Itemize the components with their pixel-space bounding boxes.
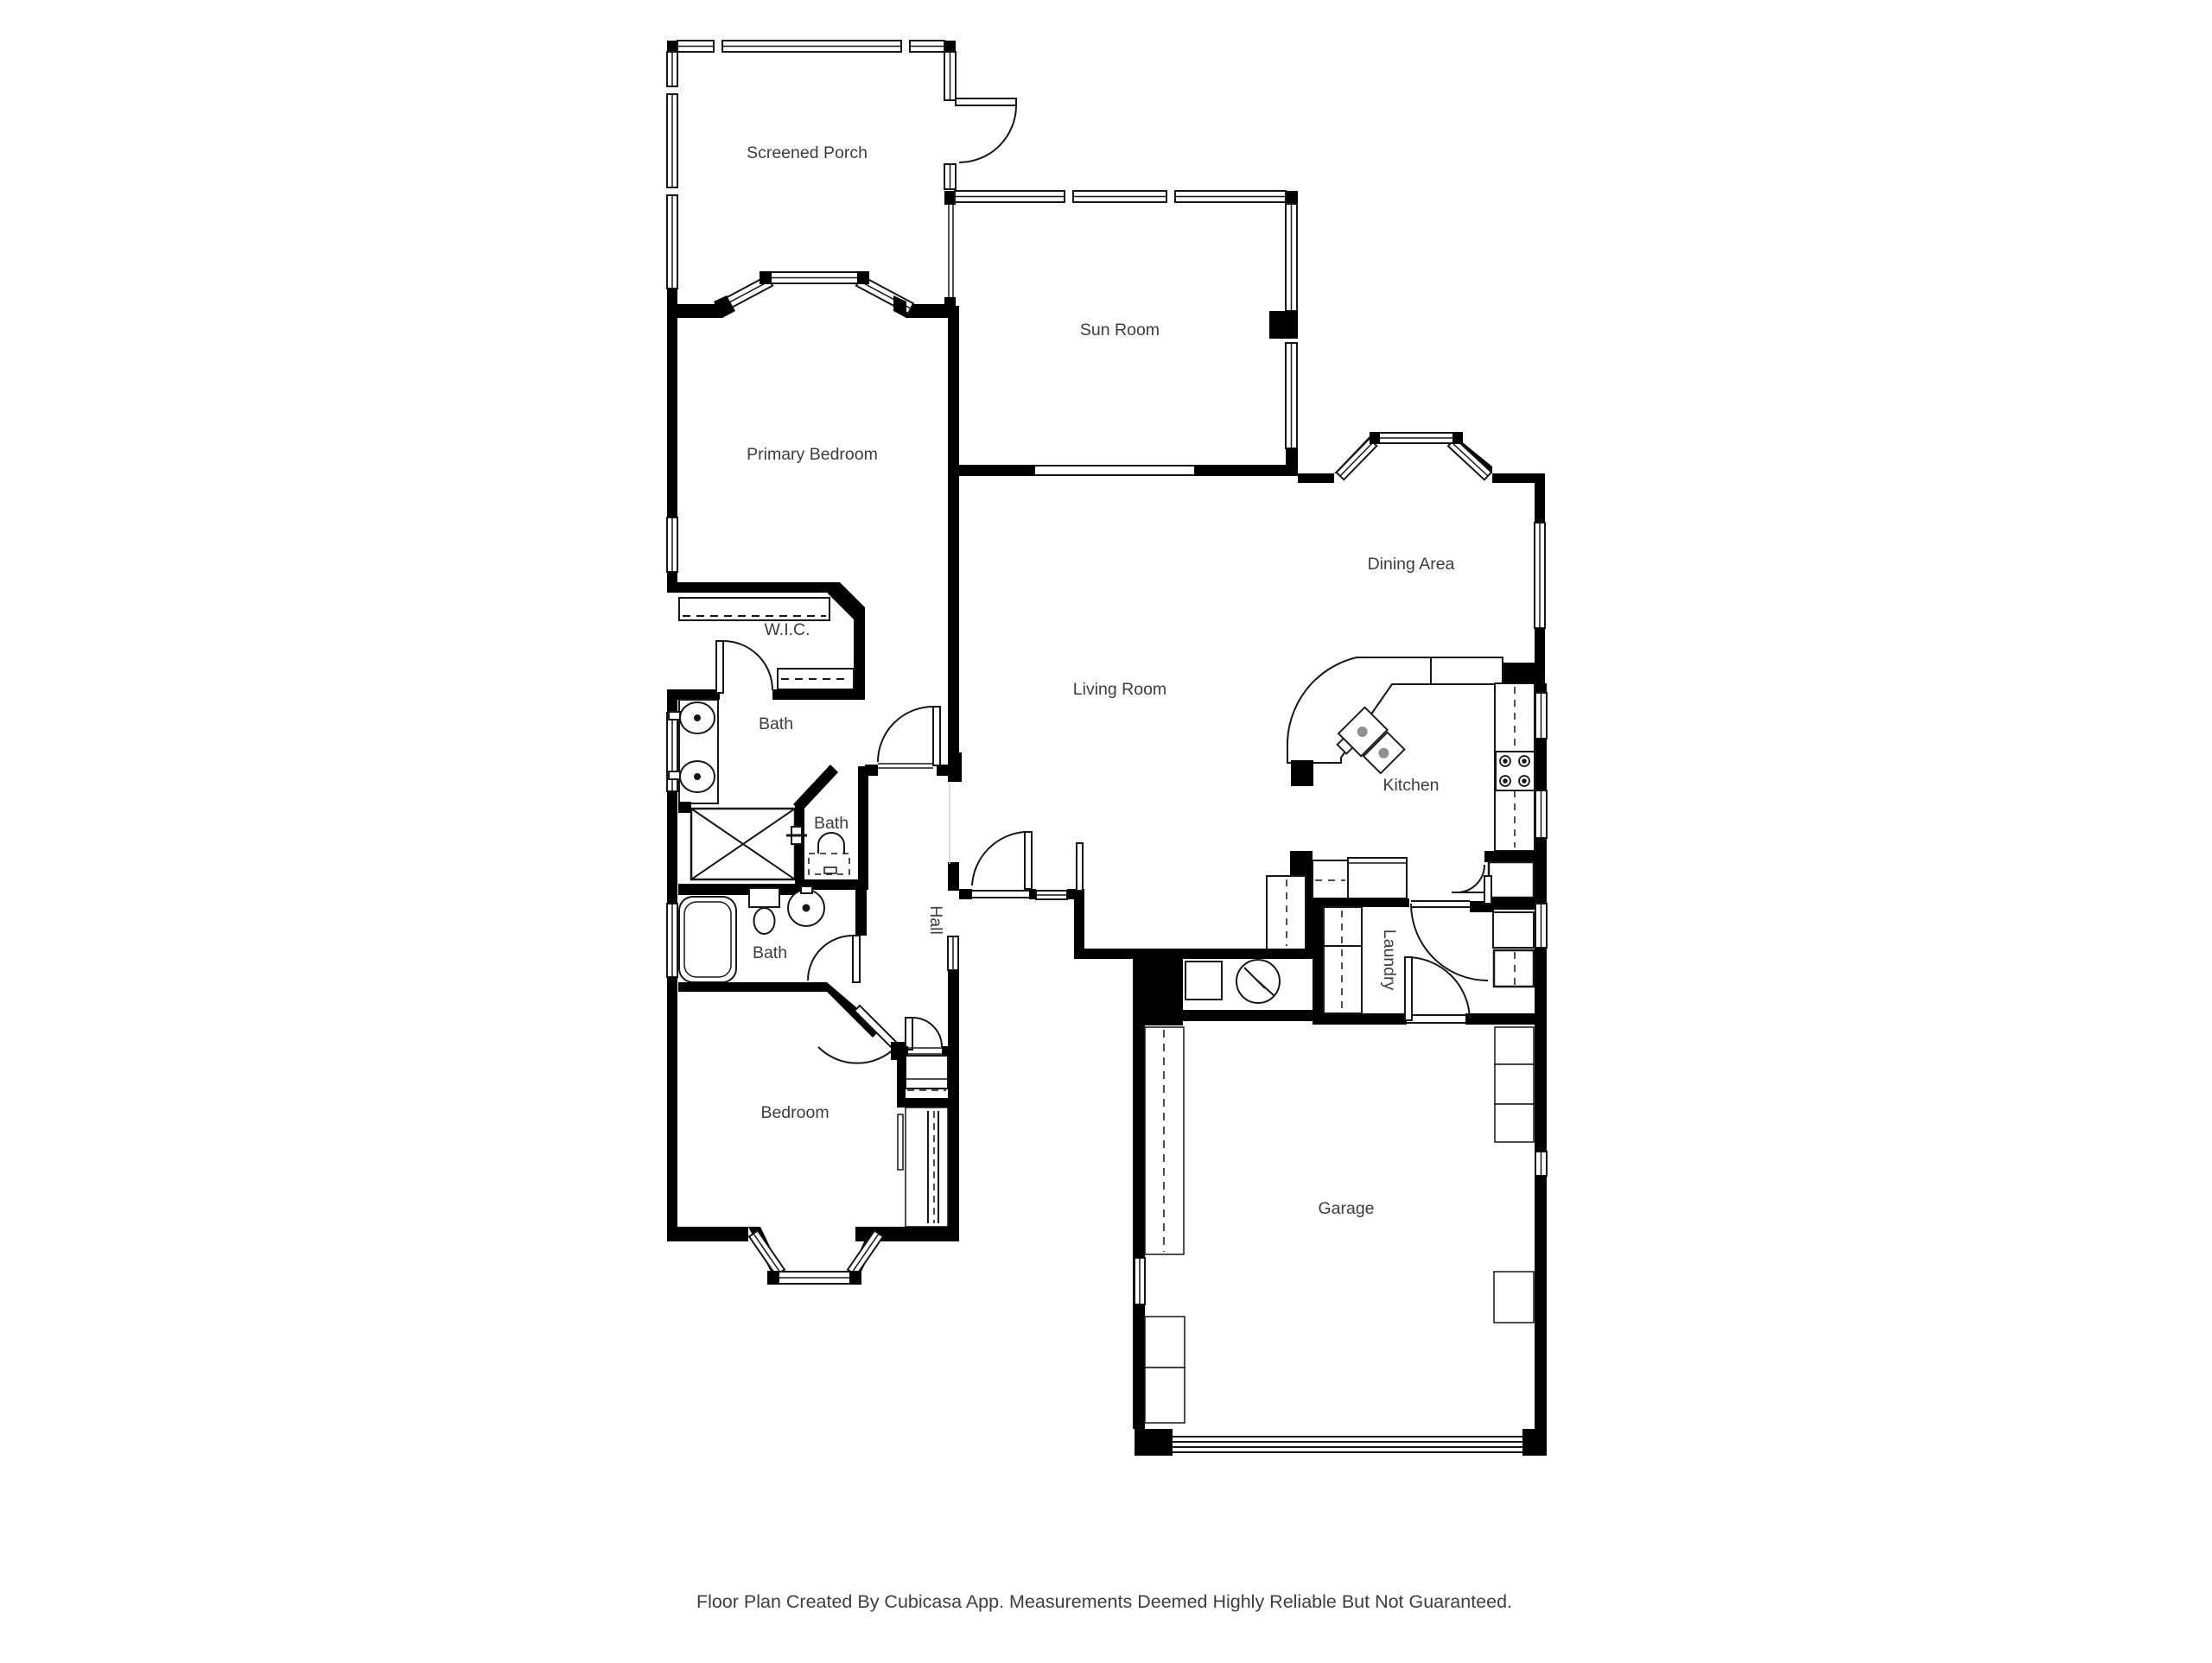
svg-text:Dining Area: Dining Area [1368, 555, 1455, 574]
svg-text:Floor Plan Created By Cubicasa: Floor Plan Created By Cubicasa App. Meas… [696, 1591, 1512, 1612]
svg-text:Primary Bedroom: Primary Bedroom [747, 445, 878, 464]
svg-text:Bath: Bath [753, 943, 787, 962]
svg-text:Bedroom: Bedroom [760, 1103, 829, 1122]
svg-text:Screened Porch: Screened Porch [747, 143, 868, 162]
svg-text:Living Room: Living Room [1073, 680, 1166, 699]
svg-text:Garage: Garage [1318, 1199, 1374, 1218]
svg-text:Laundry: Laundry [1380, 930, 1399, 991]
svg-text:Bath: Bath [759, 714, 793, 733]
svg-text:Kitchen: Kitchen [1382, 776, 1439, 795]
svg-text:W.I.C.: W.I.C. [764, 620, 810, 639]
svg-text:Sun Room: Sun Room [1080, 321, 1160, 340]
svg-text:Hall: Hall [926, 905, 945, 935]
svg-text:Bath: Bath [814, 814, 849, 833]
